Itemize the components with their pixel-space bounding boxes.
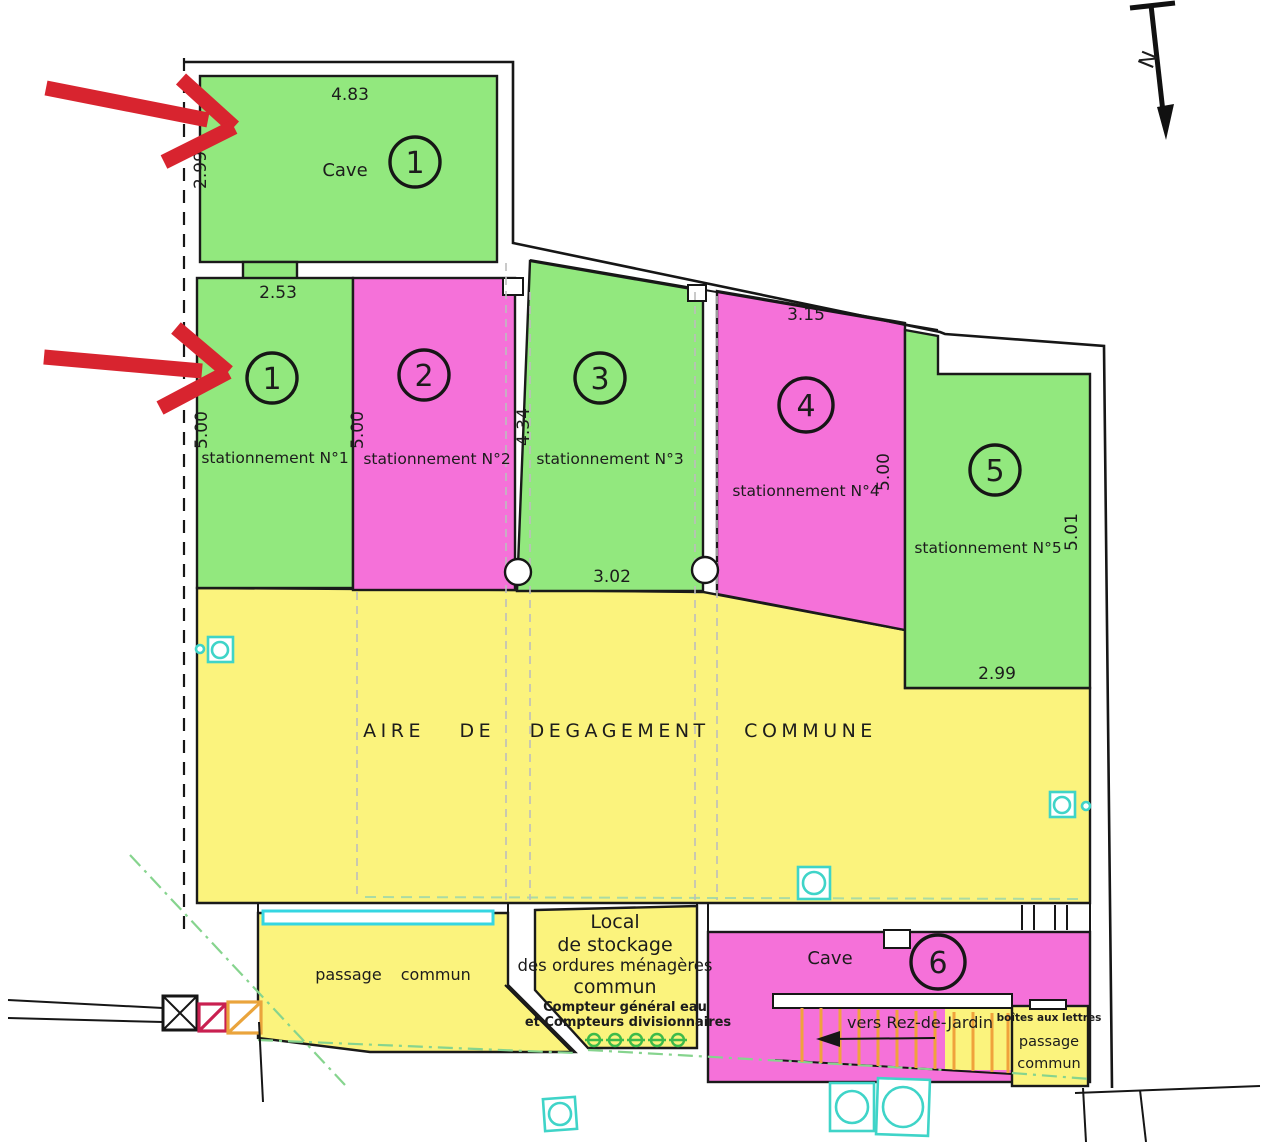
mailbox-line3: commun	[1017, 1056, 1080, 1072]
stall-2-area	[353, 278, 515, 590]
wall-notch-2	[688, 285, 706, 301]
meter-note-1: Compteur général eau	[543, 1000, 707, 1015]
north-arrow: N	[1130, 3, 1175, 140]
dim-stall3-left: 4.34	[514, 408, 534, 446]
stall-1-label: stationnement N°1	[201, 449, 348, 467]
cave-1-label: Cave	[322, 160, 367, 181]
gutter-channel	[263, 911, 493, 924]
dim-stall4-top: 3.15	[787, 305, 825, 325]
local-label-3: des ordures ménagères	[518, 956, 713, 975]
local-label-4: commun	[573, 976, 656, 998]
dim-stall2-left: 5.00	[348, 411, 368, 449]
dim-stall1-top: 2.53	[259, 283, 297, 303]
svg-text:5: 5	[985, 454, 1004, 489]
dim-cave1-left: 2.99	[191, 151, 211, 189]
dim-cave1-top: 4.83	[331, 85, 369, 105]
bollard-post	[505, 559, 531, 585]
cave-1-neck	[243, 262, 297, 279]
mailbox-title: boîtes aux lettres	[997, 1012, 1102, 1024]
stall-3-area	[517, 261, 703, 591]
cave-6-label: Cave	[807, 948, 852, 969]
stall-2-label: stationnement N°2	[363, 450, 510, 468]
stairs-label: vers Rez-de-Jardin	[847, 1013, 993, 1032]
dim-stall3-bottom: 3.02	[593, 567, 631, 587]
local-label-2: de stockage	[557, 934, 672, 956]
local-label-1: Local	[590, 911, 639, 933]
svg-text:1: 1	[262, 362, 281, 397]
stair-head-wall	[773, 994, 1012, 1008]
wall-notch-3	[884, 930, 910, 948]
common-area-label: AIRE DE DEGAGEMENT COMMUNE	[363, 720, 877, 742]
basement-floor-plan: 1 1 2 3 4 5 6 Cave 4.83 2.99 2.53 5.00 s…	[0, 0, 1280, 1142]
dim-stall5-bottom: 2.99	[978, 664, 1016, 684]
stall-5-area	[905, 330, 1090, 688]
svg-text:6: 6	[928, 946, 947, 981]
dim-stall1-left: 5.00	[192, 411, 212, 449]
mailbox-line2: passage	[1019, 1034, 1079, 1050]
stall-5-label: stationnement N°5	[914, 539, 1061, 557]
stall-1-area	[197, 278, 353, 588]
meter-note-2: et Compteurs divisionnaires	[525, 1015, 732, 1030]
stall-3-label: stationnement N°3	[536, 450, 683, 468]
svg-text:2: 2	[414, 359, 433, 394]
passage-left-label: passage commun	[315, 965, 471, 984]
bollard-post	[692, 557, 718, 583]
stall-4-label: stationnement N°4	[732, 482, 879, 500]
svg-text:3: 3	[590, 362, 609, 397]
cave-1-number: 1	[405, 146, 424, 181]
mailbox-symbol	[1030, 1000, 1066, 1009]
dim-stall5-right: 5.01	[1062, 513, 1082, 551]
north-arrowhead-icon	[1157, 104, 1174, 140]
svg-text:4: 4	[796, 389, 815, 424]
dim-stall4-right: 5.00	[874, 453, 894, 491]
